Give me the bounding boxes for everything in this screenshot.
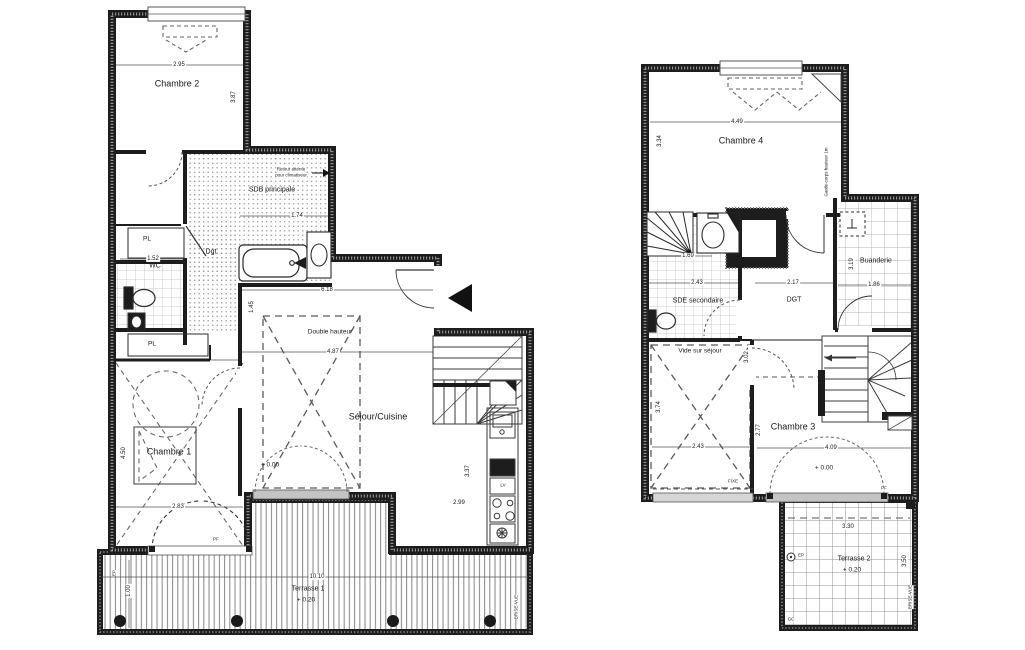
dim-label: 2.99 xyxy=(452,500,466,506)
room-label-sejour: Séjour/Cuisine xyxy=(349,412,408,421)
dim-label: 4.49 xyxy=(730,119,744,125)
vent-note-line1: Retour attente xyxy=(277,168,306,173)
room-label-sde: SDE secondaire xyxy=(673,297,724,304)
window-tag: FIXE xyxy=(728,480,738,485)
dim-label: 3.50 xyxy=(902,554,908,568)
room-label-terrasse2: Terrasse 2 xyxy=(838,555,871,562)
dim-label: 3.34 xyxy=(657,134,663,148)
level-label: + 0.00 xyxy=(261,463,279,470)
dim-label: 3.02 xyxy=(744,350,750,364)
dim-label: 1.74 xyxy=(290,213,304,219)
closet-label: PL xyxy=(148,342,156,349)
dishwasher-label: LV xyxy=(500,484,505,489)
room-label-vide: Vide sur séjour xyxy=(678,349,721,356)
dim-label: 2.17 xyxy=(786,280,800,286)
level-label: + 0.00 xyxy=(815,466,833,473)
room-label-chambre4: Chambre 4 xyxy=(719,136,764,145)
dim-label: 1.45 xyxy=(249,300,255,314)
level-label: + 0.20 xyxy=(297,598,315,605)
rainwater-label: EP xyxy=(113,570,118,576)
dim-label: 2.95 xyxy=(172,62,186,68)
dim-label: 2.43 xyxy=(690,280,704,286)
dim-label: 3.37 xyxy=(465,464,471,478)
window-tag: PF xyxy=(213,538,219,543)
gc-label: GC xyxy=(788,618,795,623)
dim-label: 1.86 xyxy=(867,282,881,288)
room-label-chambre2: Chambre 2 xyxy=(155,79,200,88)
dim-label: 4.50 xyxy=(121,446,127,460)
note-double-hauteur: Double hauteur xyxy=(308,330,352,337)
room-label-dgt: DGT xyxy=(787,296,802,303)
dim-label: 2.43 xyxy=(691,444,705,450)
labels-layer: Chambre 2 SDB principale WC Dgt PL PL Ch… xyxy=(0,0,1025,650)
dim-label: 1.52 xyxy=(146,256,160,262)
room-label-chambre3: Chambre 3 xyxy=(771,422,816,431)
room-label-wc: WC xyxy=(149,262,161,269)
privacy-screen-label: BRISE-VUE xyxy=(909,585,914,609)
dim-label: 4.87 xyxy=(326,349,340,355)
vent-note-line2: pour climatiseur xyxy=(275,174,307,179)
room-label-sdb: SDB principale xyxy=(249,186,295,193)
room-label-buanderie: Buanderie xyxy=(860,257,892,264)
dim-label: 1.69 xyxy=(681,253,695,259)
room-label-chambre1: Chambre 1 xyxy=(147,447,192,456)
room-label-dgt: Dgt xyxy=(206,248,217,255)
level-label: + 0.20 xyxy=(843,568,861,575)
room-label-terrasse1: Terrasse 1 xyxy=(292,585,325,592)
dim-label: 2.83 xyxy=(171,504,185,510)
closet-label: PL xyxy=(143,237,151,244)
rainwater-label: EP xyxy=(798,554,804,559)
dim-label: 3.74 xyxy=(656,400,662,414)
privacy-screen-label: BRISE-VUE xyxy=(515,595,520,619)
dim-label: 6.18 xyxy=(320,287,334,293)
floorplan-canvas: Chambre 2 SDB principale WC Dgt PL PL Ch… xyxy=(0,0,1025,650)
dim-label: 1.00 xyxy=(126,584,132,598)
window-tag: PF xyxy=(881,487,887,492)
dim-label: 2.77 xyxy=(756,423,762,437)
guardrail-note: Garde-corps hauteur 1m xyxy=(825,147,830,196)
dim-label: 3.30 xyxy=(841,524,855,530)
dim-label: 10.10 xyxy=(308,574,325,580)
dim-label: 3.19 xyxy=(849,257,855,271)
dim-label: 4.09 xyxy=(824,445,838,451)
dim-label: 3.87 xyxy=(231,90,237,104)
